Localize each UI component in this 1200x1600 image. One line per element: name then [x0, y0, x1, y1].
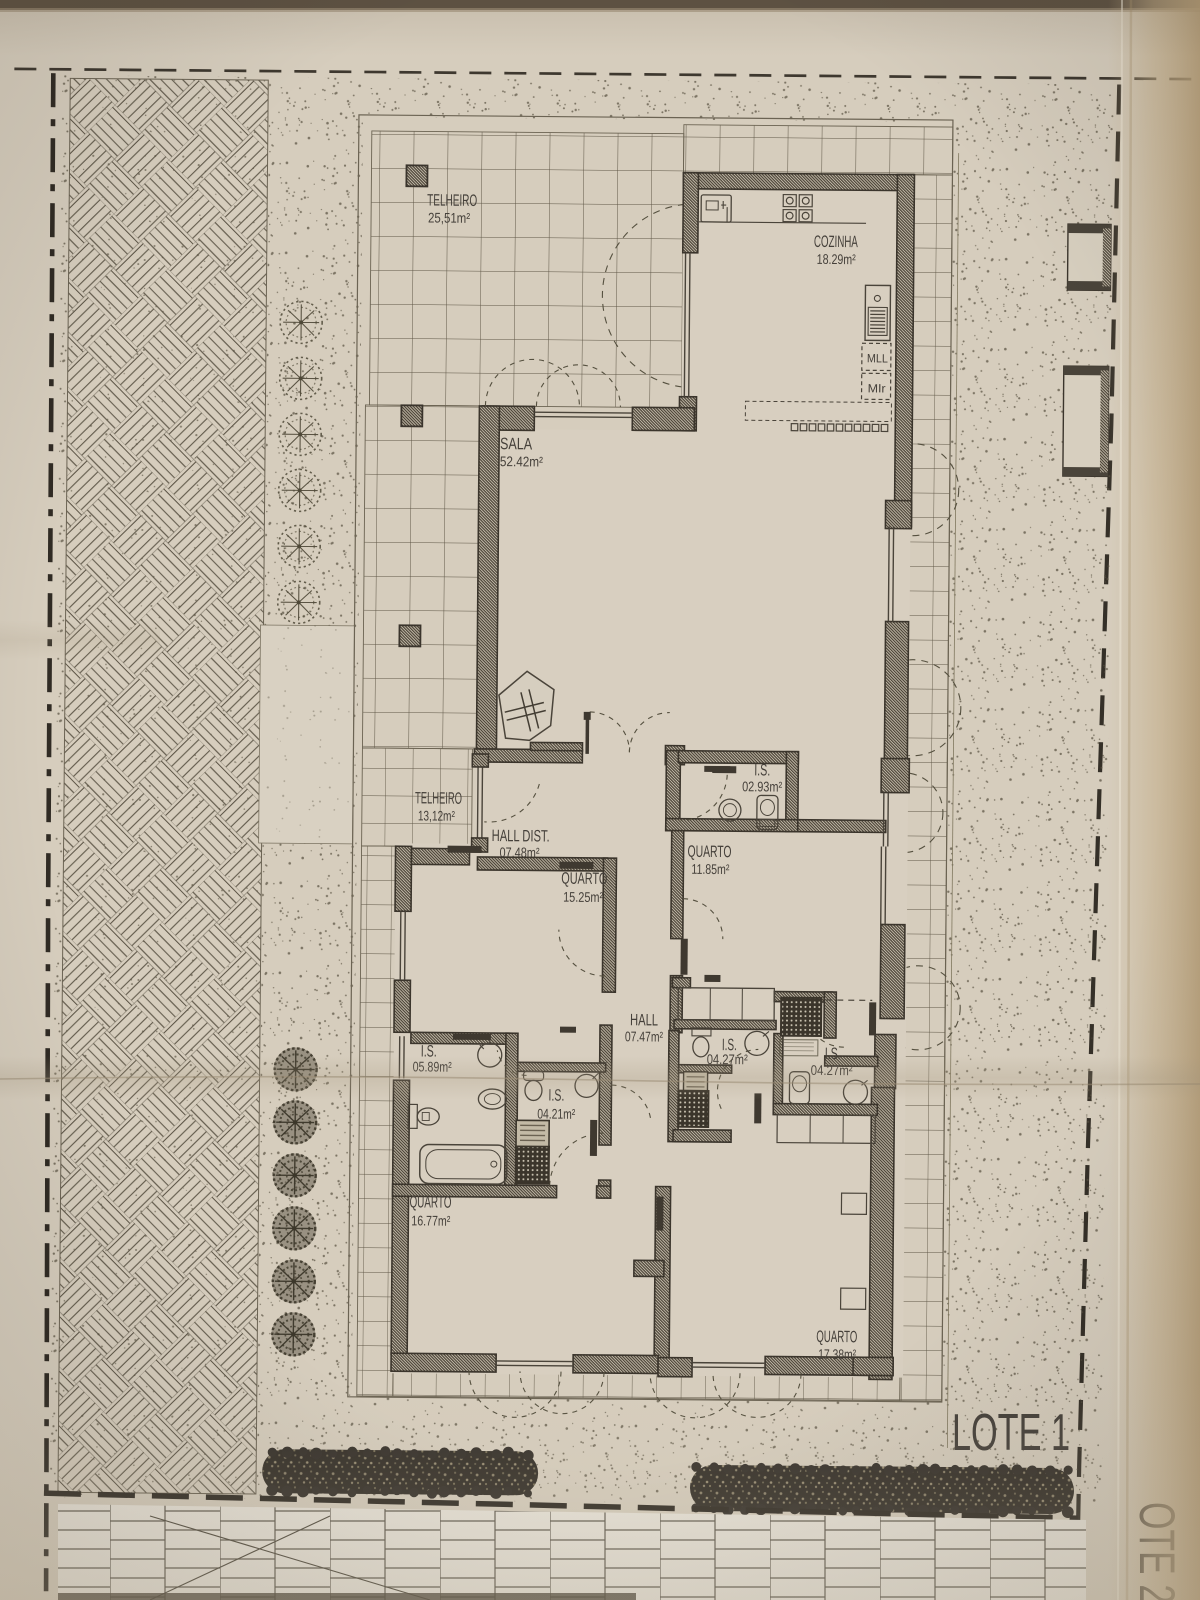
- svg-text:HALL DIST.: HALL DIST.: [492, 827, 550, 846]
- svg-text:07.47m²: 07.47m²: [625, 1028, 663, 1044]
- svg-text:07.48m²: 07.48m²: [499, 844, 539, 860]
- svg-text:I.S.: I.S.: [825, 1045, 841, 1063]
- svg-text:04.27m²: 04.27m²: [707, 1051, 748, 1067]
- svg-text:QUARTO: QUARTO: [816, 1328, 857, 1346]
- svg-text:15.25m²: 15.25m²: [563, 889, 603, 905]
- svg-text:LOTE 1: LOTE 1: [952, 1404, 1070, 1462]
- svg-text:QUARTO: QUARTO: [687, 843, 731, 861]
- svg-text:11.85m²: 11.85m²: [691, 861, 729, 877]
- svg-text:QUARTO: QUARTO: [409, 1193, 451, 1211]
- svg-text:16.77m²: 16.77m²: [411, 1212, 450, 1228]
- svg-text:52.42m²: 52.42m²: [500, 453, 543, 469]
- svg-text:18.29m²: 18.29m²: [817, 251, 856, 267]
- svg-text:MIr: MIr: [868, 381, 886, 395]
- svg-text:SALA: SALA: [500, 435, 532, 453]
- svg-text:MLL: MLL: [867, 351, 888, 365]
- svg-text:04.27m²: 04.27m²: [811, 1062, 853, 1078]
- svg-text:HALL: HALL: [630, 1011, 658, 1029]
- svg-text:COZINHA: COZINHA: [814, 233, 858, 251]
- svg-text:I.S.: I.S.: [548, 1087, 564, 1105]
- svg-text:04.21m²: 04.21m²: [537, 1105, 575, 1121]
- svg-text:17.38m²: 17.38m²: [818, 1346, 856, 1362]
- svg-text:13,12m²: 13,12m²: [418, 807, 455, 823]
- svg-text:TELHEIRO: TELHEIRO: [427, 191, 477, 209]
- svg-text:05.89m²: 05.89m²: [413, 1058, 452, 1074]
- svg-text:TELHEIRO: TELHEIRO: [415, 789, 462, 807]
- svg-text:02.93m²: 02.93m²: [742, 778, 782, 794]
- svg-text:QUARTO: QUARTO: [561, 870, 607, 888]
- svg-text:I.S.: I.S.: [754, 761, 770, 779]
- svg-text:OTE 2: OTE 2: [1129, 1502, 1185, 1600]
- svg-text:25,51m²: 25,51m²: [428, 209, 470, 225]
